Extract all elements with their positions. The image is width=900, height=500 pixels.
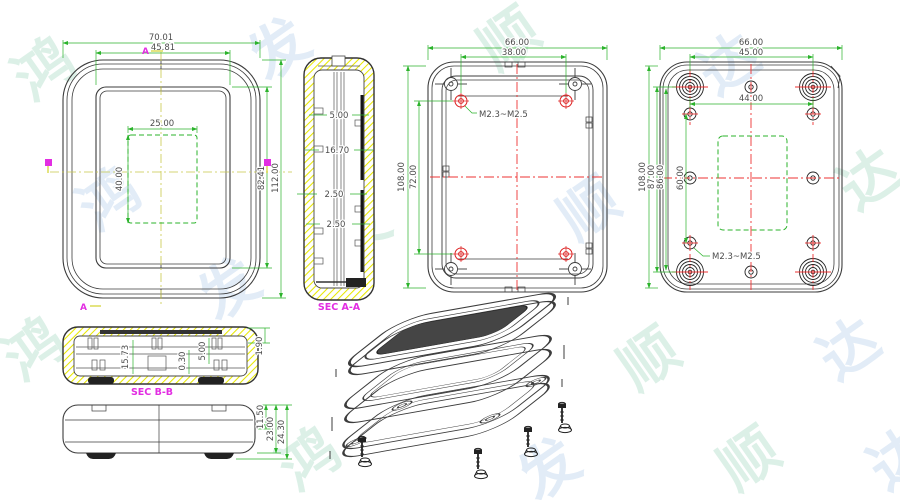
- dim-front-bezel-height: 82.41: [257, 166, 267, 190]
- rubber-foot-3d: [359, 458, 372, 467]
- side-foot: [86, 453, 116, 459]
- dim-secaa-1: 5.00: [330, 111, 349, 121]
- section-marker-a-top: A: [142, 47, 149, 57]
- cad-drawing-sheet: 鸿 发 顺 达 鸿 发 顺 达 鸿 发 顺 达 鸿 发 顺 达: [0, 0, 900, 500]
- section-aa-screw-boss: [346, 278, 366, 287]
- rubber-foot-3d: [475, 470, 488, 479]
- dim-secaa-4: 2.50: [327, 220, 346, 230]
- dim-outer-foot-width: 45.00: [739, 48, 763, 58]
- dim-front-cutout-height: 40.00: [115, 167, 125, 191]
- section-bb-foot: [88, 377, 114, 384]
- dim-front-outer-height: 112.00: [271, 163, 281, 193]
- section-bb-view: 15.73 0.30 5.00 1.90 SEC B-B: [63, 327, 270, 398]
- dim-outer-86: 86.00: [656, 165, 666, 189]
- section-marker-b-left: [45, 159, 52, 166]
- section-aa-label: SEC A-A: [318, 302, 361, 313]
- dim-front-cutout-width: 25.00: [150, 119, 174, 129]
- thread-boss: [453, 93, 469, 109]
- side-foot: [204, 453, 234, 459]
- front-view: [63, 60, 260, 298]
- outer-thread-label: M2.3~M2.5: [712, 252, 761, 262]
- dim-inner-boss-height: 72.00: [409, 165, 419, 189]
- dim-secbb-4: 1.90: [255, 337, 265, 356]
- screw: [525, 426, 532, 447]
- front-cutout-dashed: [128, 135, 197, 223]
- rubber-foot-3d: [525, 448, 538, 457]
- dim-secaa-3: 2.50: [325, 190, 344, 200]
- inner-bottom-dimlines: [403, 45, 607, 288]
- front-inner-ring: [72, 69, 251, 289]
- thread-boss: [453, 246, 469, 262]
- section-marker-b-right: [264, 159, 271, 166]
- dim-outer-hole-width: 44.00: [739, 94, 763, 104]
- dim-front-outer-width: 70.01: [149, 33, 173, 43]
- side-view: [63, 405, 255, 459]
- dim-inner-width: 66.00: [505, 38, 529, 48]
- front-outer-outline-2: [67, 64, 256, 294]
- section-bb-label: SEC B-B: [131, 387, 173, 398]
- screw-post: [435, 253, 467, 285]
- dim-outer-60: 60.00: [676, 166, 686, 190]
- dim-side-3: 24.30: [277, 420, 287, 444]
- dim-secaa-2: 16.70: [325, 146, 349, 156]
- dim-inner-boss-width: 38.00: [502, 48, 526, 58]
- screw-post: [559, 253, 591, 285]
- screw: [475, 448, 482, 469]
- screw: [559, 402, 566, 423]
- dim-secbb-3: 5.00: [198, 342, 208, 361]
- section-aa-cavity: [314, 70, 364, 288]
- section-aa-view: 5.00 16.70 2.50 2.50 SEC A-A: [297, 56, 374, 313]
- dim-secbb-1: 15.73: [121, 345, 131, 369]
- outer-bottom-dashed-cutout: [718, 136, 787, 230]
- outer-bottom-holes: [684, 81, 819, 278]
- exploded-view: [329, 289, 571, 478]
- thread-boss: [558, 93, 574, 109]
- thread-boss: [558, 246, 574, 262]
- dim-inner-height: 108.00: [397, 162, 407, 192]
- dim-secbb-2: 0.30: [178, 352, 188, 371]
- section-bb-window-edge: [100, 330, 222, 334]
- section-bb-foot: [198, 377, 224, 384]
- section-marker-a-bottom: A: [80, 303, 87, 313]
- inner-thread-label: M2.3~M2.5: [479, 110, 528, 120]
- rubber-foot-3d: [559, 424, 572, 433]
- exploded-feet: [359, 424, 572, 479]
- dim-outer-width: 66.00: [739, 38, 763, 48]
- drawing-canvas: 70.01 45.81 25.00 40.00 82.41 112.00 A A: [0, 0, 900, 500]
- dim-side-1: 11.50: [256, 405, 266, 429]
- dim-side-2: 23.00: [266, 417, 276, 441]
